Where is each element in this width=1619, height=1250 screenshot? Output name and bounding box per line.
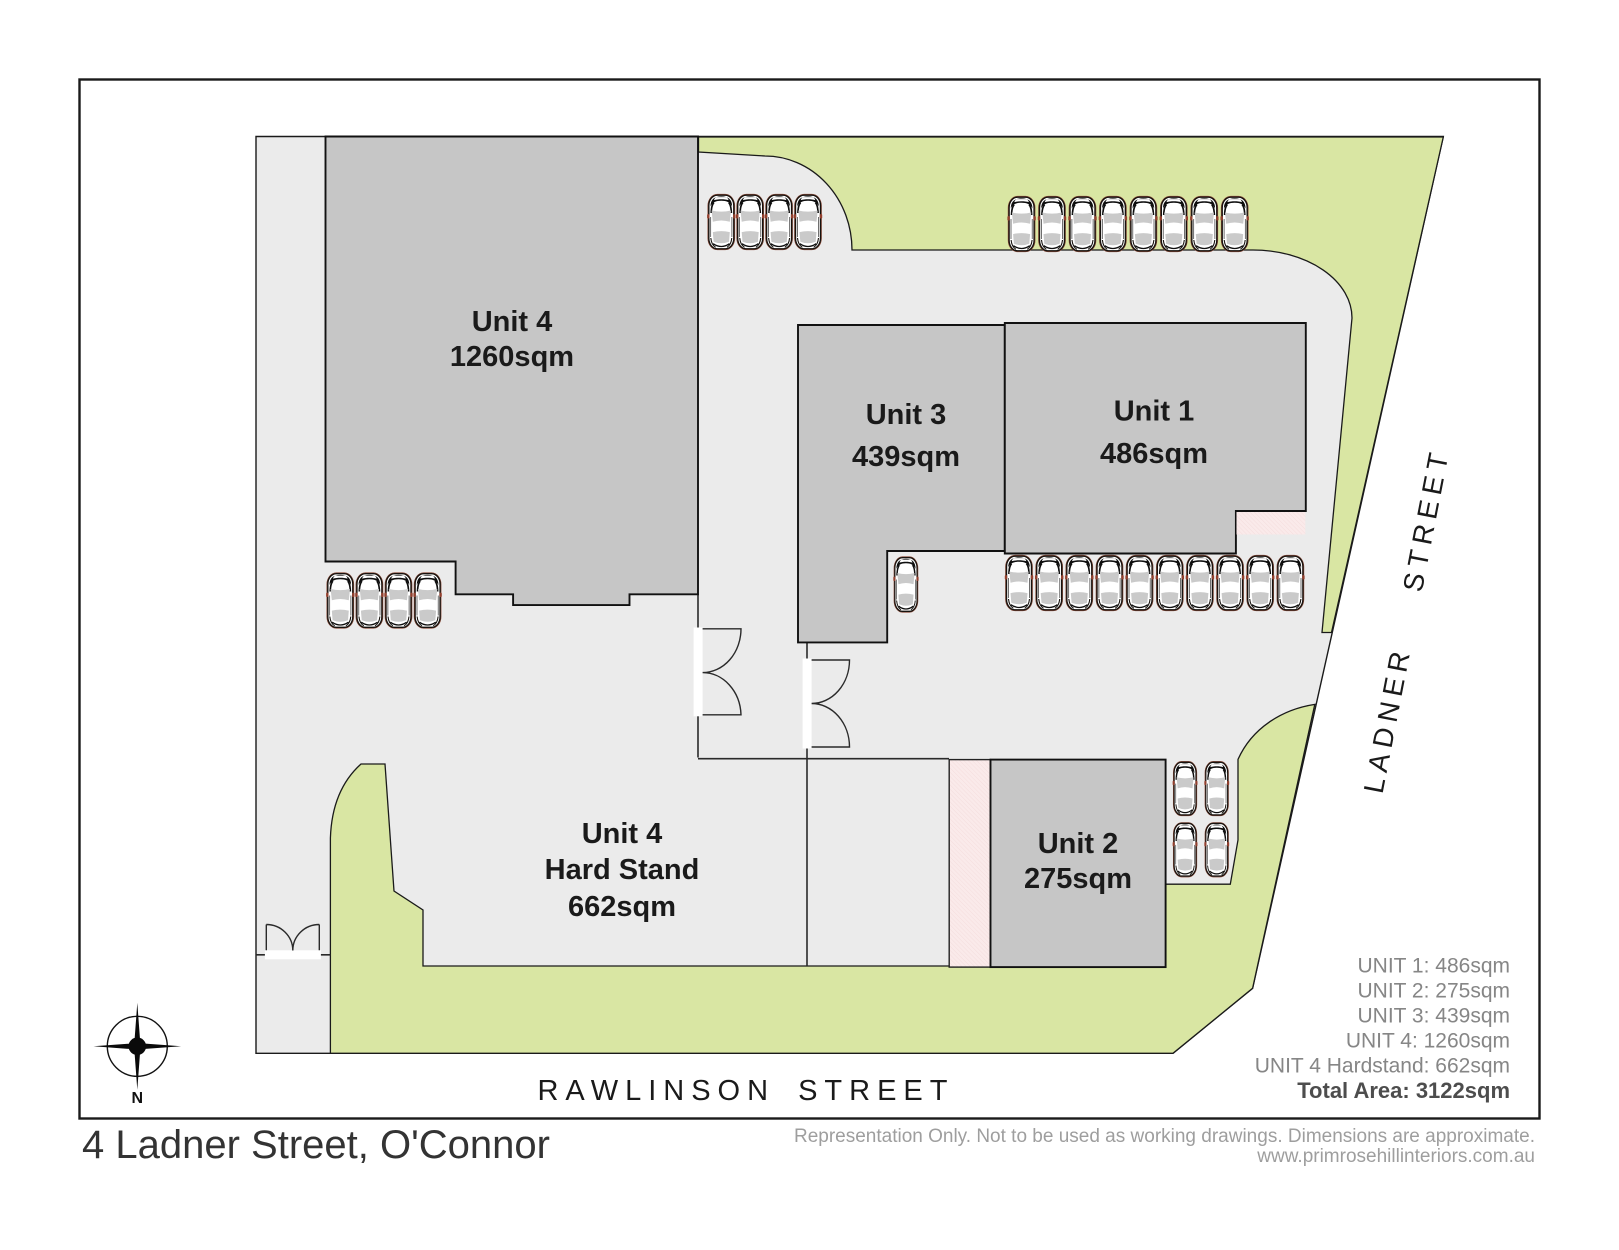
svg-text:662sqm: 662sqm <box>568 891 676 923</box>
svg-text:Representation Only. Not to be: Representation Only. Not to be used as w… <box>794 1126 1535 1147</box>
svg-text:275sqm: 275sqm <box>1024 863 1132 895</box>
svg-text:Unit 2: Unit 2 <box>1038 828 1119 860</box>
svg-text:N: N <box>132 1090 144 1107</box>
svg-text:www.primrosehillinteriors.com.: www.primrosehillinteriors.com.au <box>1256 1146 1535 1167</box>
svg-text:486sqm: 486sqm <box>1100 438 1208 470</box>
svg-text:Unit 4: Unit 4 <box>472 306 553 338</box>
svg-text:UNIT 4: 1260sqm: UNIT 4: 1260sqm <box>1346 1030 1510 1053</box>
svg-text:1260sqm: 1260sqm <box>450 341 574 373</box>
svg-text:Total Area: 3122sqm: Total Area: 3122sqm <box>1297 1078 1510 1103</box>
svg-text:UNIT 1: 486sqm: UNIT 1: 486sqm <box>1357 955 1510 978</box>
svg-text:439sqm: 439sqm <box>852 441 960 473</box>
svg-text:RAWLINSON STREET: RAWLINSON STREET <box>537 1075 954 1107</box>
svg-text:Unit 3: Unit 3 <box>866 399 947 431</box>
svg-text:4 Ladner Street, O'Connor: 4 Ladner Street, O'Connor <box>82 1123 550 1167</box>
svg-text:Unit 4: Unit 4 <box>582 818 663 850</box>
svg-text:Unit 1: Unit 1 <box>1114 396 1195 428</box>
svg-text:UNIT 4 Hardstand: 662sqm: UNIT 4 Hardstand: 662sqm <box>1255 1055 1510 1078</box>
svg-text:Hard Stand: Hard Stand <box>545 854 700 886</box>
svg-text:UNIT 2: 275sqm: UNIT 2: 275sqm <box>1357 980 1510 1003</box>
svg-text:UNIT 3: 439sqm: UNIT 3: 439sqm <box>1357 1005 1510 1028</box>
